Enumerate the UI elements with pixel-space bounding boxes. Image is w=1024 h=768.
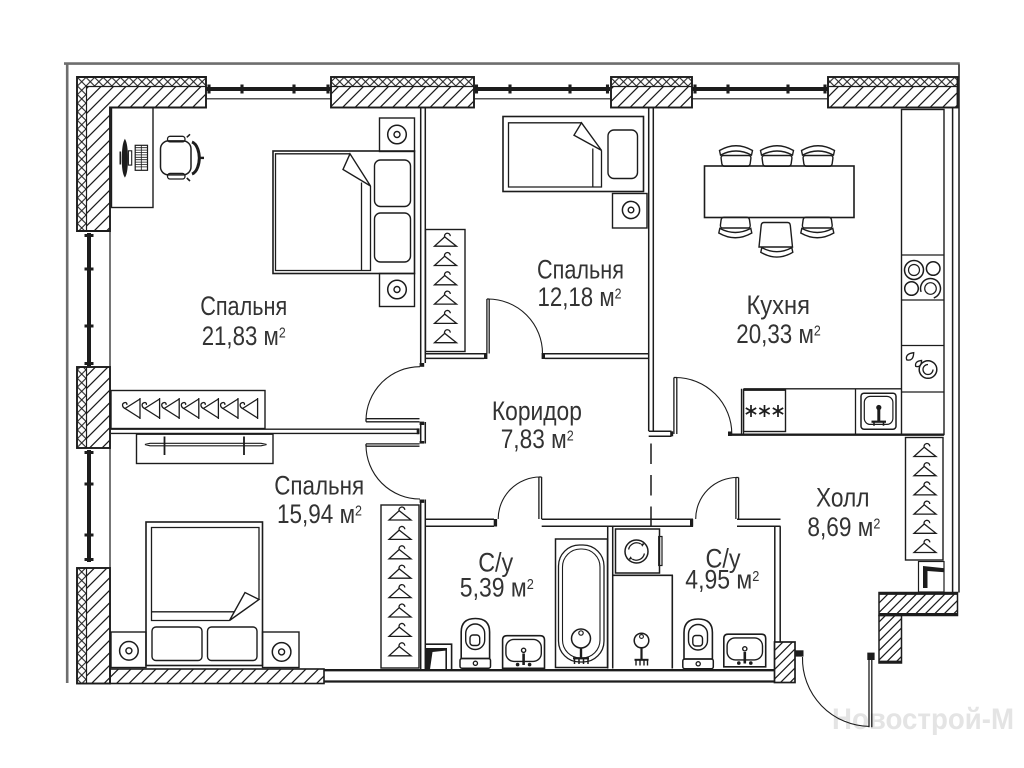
svg-text:4,95 м2: 4,95 м2	[685, 565, 759, 595]
svg-text:12,18 м2: 12,18 м2	[538, 282, 622, 312]
svg-text:21,83 м2: 21,83 м2	[202, 321, 286, 351]
svg-text:8,69 м2: 8,69 м2	[807, 512, 880, 542]
svg-text:Спальня: Спальня	[200, 291, 287, 321]
svg-text:5,39 м2: 5,39 м2	[460, 573, 534, 603]
svg-text:Кухня: Кухня	[746, 290, 810, 320]
svg-text:15,94 м2: 15,94 м2	[277, 499, 362, 529]
svg-text:Новострой-М: Новострой-М	[832, 703, 1014, 736]
svg-text:Холл: Холл	[816, 483, 870, 513]
svg-text:Спальня: Спальня	[274, 471, 364, 501]
svg-text:Спальня: Спальня	[537, 255, 624, 285]
svg-text:20,33 м2: 20,33 м2	[736, 319, 821, 349]
svg-text:7,83 м2: 7,83 м2	[501, 424, 574, 454]
svg-text:Коридор: Коридор	[492, 396, 582, 426]
